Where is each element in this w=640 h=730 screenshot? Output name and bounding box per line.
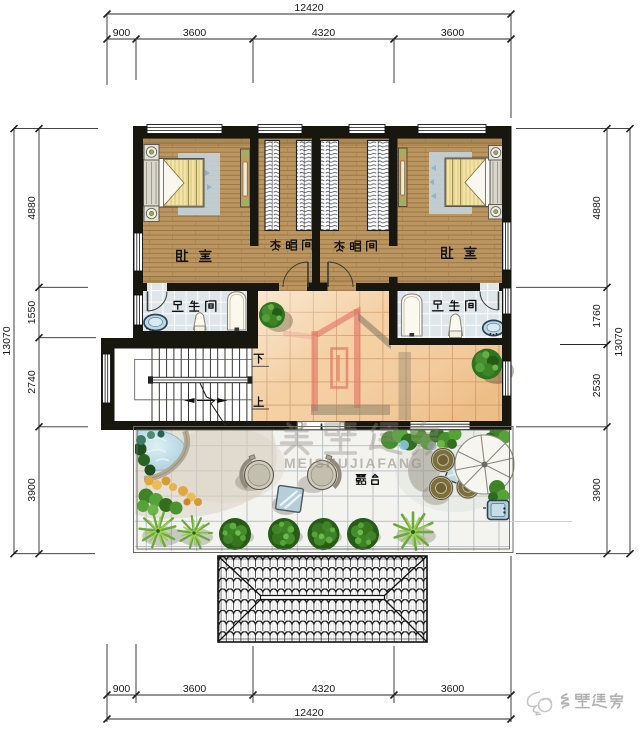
svg-text:13070: 13070 — [613, 327, 625, 356]
svg-text:900: 900 — [113, 27, 131, 39]
svg-text:3600: 3600 — [183, 27, 207, 39]
svg-text:4880: 4880 — [26, 196, 38, 220]
svg-text:12420: 12420 — [294, 707, 323, 719]
svg-text:4320: 4320 — [312, 27, 336, 39]
svg-text:1550: 1550 — [26, 301, 38, 325]
svg-text:13070: 13070 — [1, 326, 13, 355]
svg-text:12420: 12420 — [294, 2, 323, 14]
svg-text:3600: 3600 — [183, 683, 207, 695]
svg-text:4880: 4880 — [591, 196, 603, 220]
svg-text:3600: 3600 — [441, 27, 465, 39]
svg-text:3900: 3900 — [591, 478, 603, 502]
svg-text:900: 900 — [113, 683, 131, 695]
svg-text:3900: 3900 — [26, 478, 38, 502]
svg-text:2740: 2740 — [26, 370, 38, 394]
svg-text:3600: 3600 — [441, 683, 465, 695]
svg-text:MEISHUJIAFANG: MEISHUJIAFANG — [284, 455, 424, 471]
svg-text:4320: 4320 — [312, 683, 336, 695]
svg-text:2530: 2530 — [591, 374, 603, 398]
svg-text:1760: 1760 — [591, 304, 603, 328]
